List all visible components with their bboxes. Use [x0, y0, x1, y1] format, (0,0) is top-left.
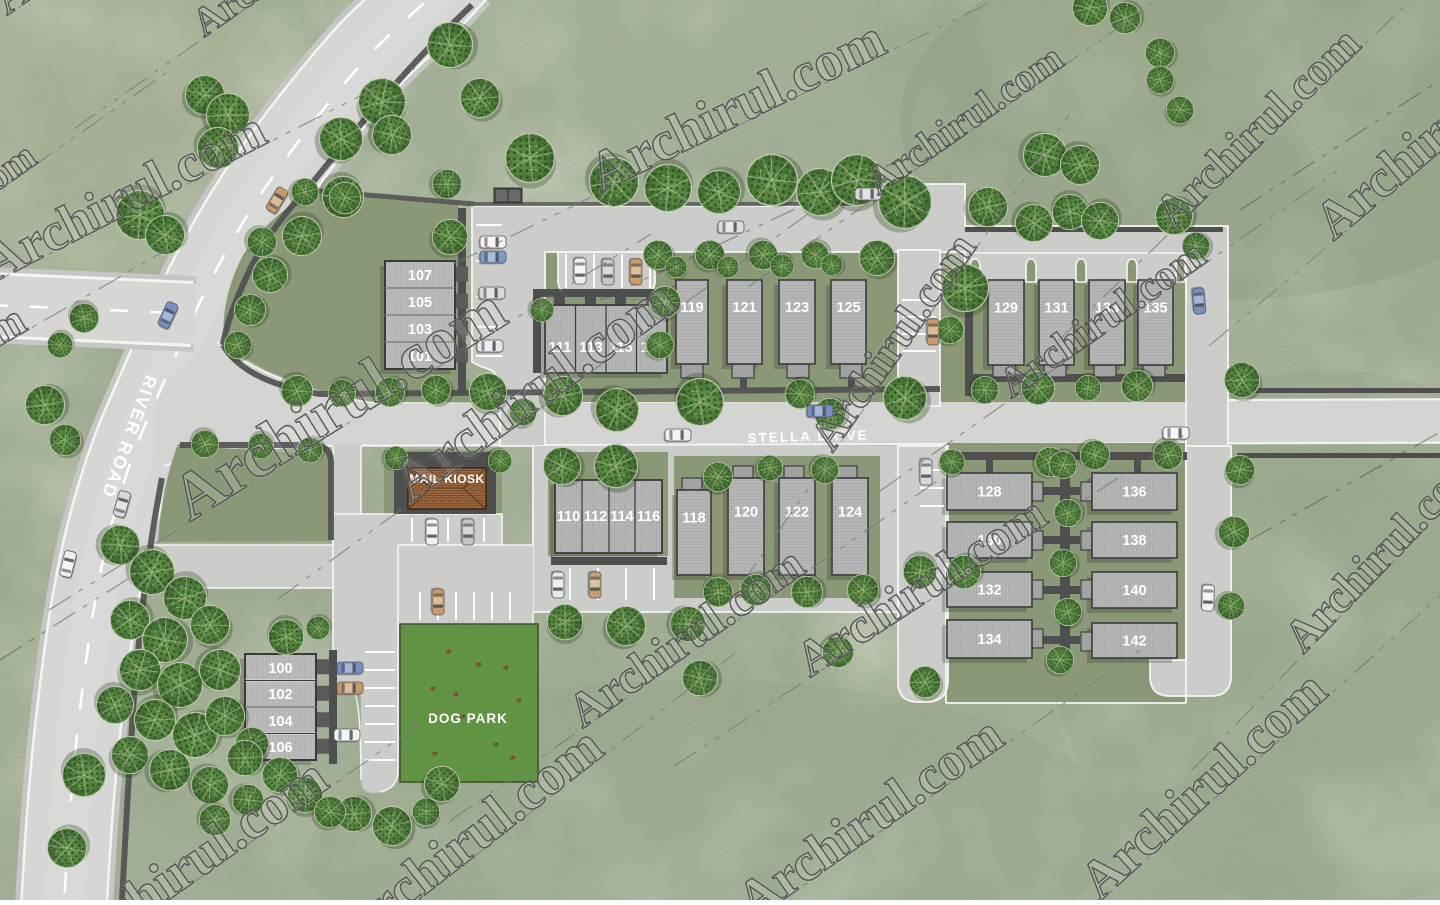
svg-text:138: 138	[1122, 533, 1146, 549]
svg-text:104: 104	[268, 714, 292, 730]
svg-text:131: 131	[1044, 301, 1068, 317]
svg-text:116: 116	[637, 509, 660, 525]
svg-text:100: 100	[268, 661, 292, 677]
svg-text:107: 107	[408, 268, 432, 284]
svg-text:114: 114	[610, 509, 633, 525]
svg-text:124: 124	[838, 505, 862, 521]
svg-text:140: 140	[1122, 583, 1146, 599]
svg-text:129: 129	[994, 301, 1018, 317]
svg-text:134: 134	[977, 632, 1001, 648]
svg-text:118: 118	[682, 511, 705, 527]
svg-text:102: 102	[268, 687, 292, 703]
svg-text:110: 110	[557, 509, 580, 525]
svg-text:125: 125	[836, 300, 860, 316]
svg-text:106: 106	[268, 740, 292, 756]
svg-text:142: 142	[1122, 634, 1146, 650]
svg-text:121: 121	[732, 300, 756, 316]
svg-text:123: 123	[785, 300, 809, 316]
svg-text:112: 112	[584, 509, 607, 525]
svg-text:DOG PARK: DOG PARK	[428, 711, 508, 726]
svg-text:132: 132	[977, 583, 1001, 599]
svg-text:120: 120	[734, 505, 758, 521]
svg-text:136: 136	[1122, 485, 1146, 501]
svg-text:128: 128	[977, 485, 1001, 501]
